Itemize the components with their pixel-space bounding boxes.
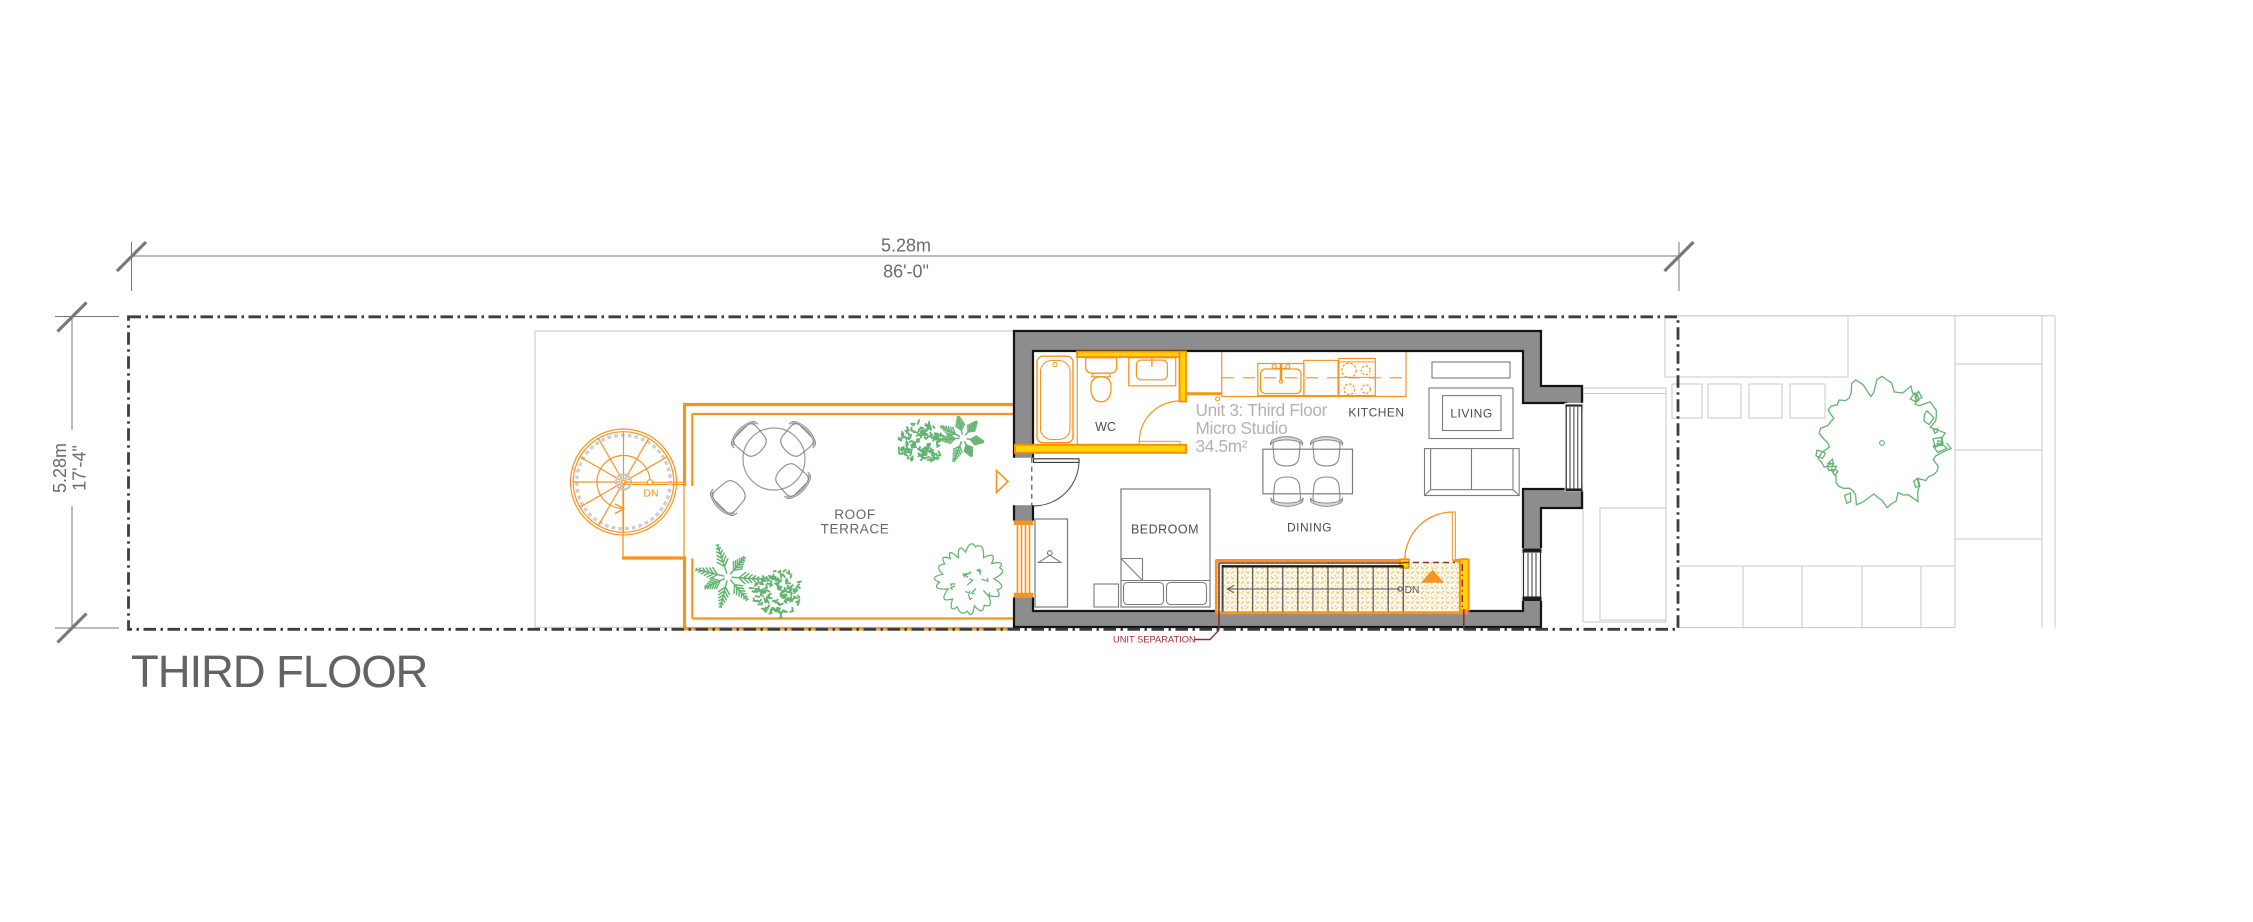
svg-text:34.5m²: 34.5m²: [1196, 436, 1248, 456]
svg-text:THIRD FLOOR: THIRD FLOOR: [131, 646, 427, 697]
svg-text:BEDROOM: BEDROOM: [1131, 523, 1199, 537]
svg-text:ROOF: ROOF: [834, 507, 875, 522]
svg-text:17'-4": 17'-4": [70, 445, 90, 491]
svg-text:86'-0": 86'-0": [883, 262, 929, 282]
svg-text:Unit 3: Third Floor: Unit 3: Third Floor: [1196, 400, 1328, 420]
svg-text:Micro Studio: Micro Studio: [1196, 418, 1288, 438]
svg-text:DN: DN: [643, 488, 658, 500]
svg-text:5.28m: 5.28m: [881, 236, 931, 256]
svg-text:KITCHEN: KITCHEN: [1348, 406, 1404, 420]
svg-text:WC: WC: [1095, 420, 1116, 434]
svg-text:DINING: DINING: [1287, 521, 1332, 535]
svg-text:UNIT SEPARATION: UNIT SEPARATION: [1113, 635, 1196, 645]
svg-text:TERRACE: TERRACE: [821, 522, 890, 537]
svg-text:5.28m: 5.28m: [50, 443, 70, 493]
svg-text:LIVING: LIVING: [1450, 407, 1492, 421]
svg-text:DN: DN: [1405, 585, 1420, 596]
